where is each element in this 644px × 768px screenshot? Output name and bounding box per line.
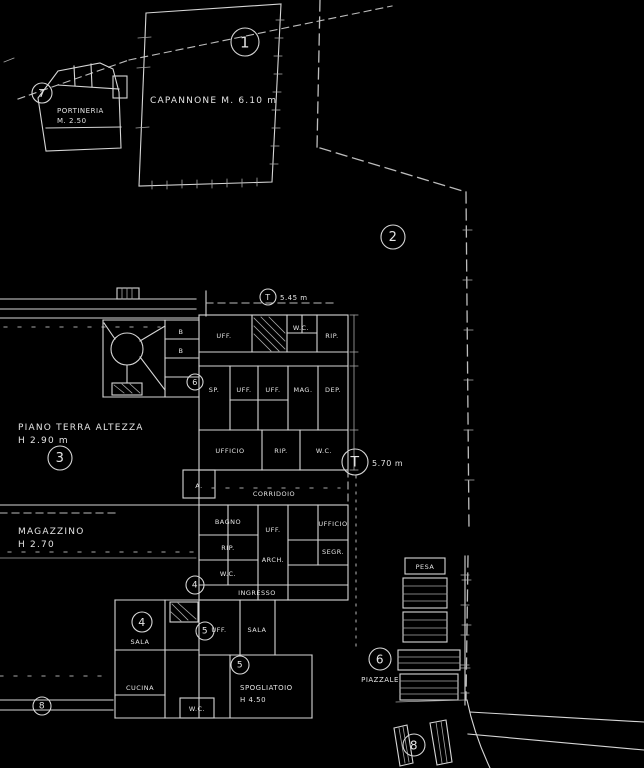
block-connector — [199, 470, 348, 505]
annex-label-line2: H 4.50 — [240, 696, 266, 704]
room-label: ARCH. — [262, 556, 285, 564]
room-label: CUCINA — [126, 684, 154, 692]
warehouse-building: CAPANNONE M. 6.10 m — [136, 4, 284, 189]
reference-marker: 6 — [187, 374, 203, 390]
room-label: INGRESSO — [238, 589, 276, 597]
room-label: RIP. — [221, 544, 234, 552]
svg-text:T: T — [349, 455, 359, 471]
room-label: UFFICIO — [318, 520, 347, 528]
room-label: A. — [195, 482, 202, 490]
reference-marker: 6 — [369, 648, 391, 670]
road-markings-left — [0, 288, 198, 327]
section-dotted-line: 5.70 m — [356, 459, 403, 648]
property-boundary — [317, 0, 474, 700]
left-site-lines: PIANO TERRA ALTEZZA H 2.90 m MAGAZZINO H… — [0, 423, 199, 710]
svg-text:4: 4 — [138, 616, 146, 629]
reference-marker: 5 — [231, 656, 249, 674]
room-label: W.C. — [220, 570, 236, 578]
ground-floor-note-line2: H 2.90 m — [18, 436, 69, 446]
room-label: MAG. — [293, 386, 312, 394]
reference-markers: 172T36T4455688 — [32, 28, 425, 756]
warehouse-note-line1: MAGAZZINO — [18, 527, 85, 537]
svg-text:5: 5 — [202, 627, 208, 637]
room-label: W.C. — [316, 447, 332, 455]
svg-text:7: 7 — [38, 87, 46, 100]
room-label: PESA — [416, 563, 435, 571]
svg-text:6: 6 — [192, 378, 198, 387]
gatehouse-label-line1: PORTINERIA — [57, 107, 104, 115]
blueprint-canvas: PORTINERIA M. 2.50 CAPANNONE M. 6.10 m — [0, 0, 644, 768]
loading-stalls: PIAZZALE — [361, 556, 469, 705]
ground-floor-note-line1: PIANO TERRA ALTEZZA — [18, 423, 144, 433]
room-label: CORRIDOIO — [253, 490, 295, 498]
gate-dimension-label: 5.45 m — [280, 294, 308, 302]
reference-marker: 3 — [48, 446, 72, 470]
room-label: SEGR. — [322, 548, 344, 556]
room-label: B — [179, 347, 184, 355]
room-label: UFF. — [265, 526, 280, 534]
svg-text:6: 6 — [376, 653, 384, 667]
svg-text:2: 2 — [389, 230, 398, 245]
room-label: W.C. — [293, 324, 309, 332]
warehouse-label: CAPANNONE M. 6.10 m — [150, 96, 277, 106]
room-label: UFF. — [236, 386, 251, 394]
reference-marker: 4 — [132, 612, 152, 632]
svg-text:T: T — [264, 293, 270, 302]
svg-text:4: 4 — [192, 581, 198, 591]
room-label: UFFICIO — [215, 447, 244, 455]
canopy-wing — [103, 320, 199, 397]
room-label: UFF. — [216, 332, 231, 340]
room-label: RIP. — [274, 447, 287, 455]
reference-marker: 2 — [381, 225, 405, 249]
office-block-upper — [183, 315, 358, 498]
room-label: SALA — [131, 638, 150, 646]
yard-label: PIAZZALE — [361, 676, 399, 684]
svg-text:8: 8 — [410, 739, 418, 753]
svg-text:5: 5 — [237, 661, 243, 671]
reference-marker: 1 — [231, 28, 259, 56]
annex-label-line1: SPOGLIATOIO — [240, 684, 293, 692]
svg-text:8: 8 — [39, 702, 45, 712]
gatehouse-label-line2: M. 2.50 — [57, 117, 87, 125]
room-label: BAGNO — [215, 518, 241, 526]
access-road — [396, 700, 644, 768]
room-label: W.C. — [189, 705, 205, 713]
section-dimension-label: 5.70 m — [372, 459, 403, 468]
room-label: DEP. — [325, 386, 341, 394]
svg-text:3: 3 — [56, 451, 65, 466]
gatehouse-building: PORTINERIA M. 2.50 — [38, 63, 127, 151]
turntable-circle — [111, 333, 143, 365]
room-label: RIP. — [325, 332, 338, 340]
room-label: B — [179, 328, 184, 336]
room-label: UFF. — [211, 626, 226, 634]
reference-marker: T — [342, 449, 368, 475]
warehouse-note-line2: H 2.70 — [18, 540, 55, 550]
room-label: UFF. — [265, 386, 280, 394]
site-plan-drawing: PORTINERIA M. 2.50 CAPANNONE M. 6.10 m — [0, 0, 644, 768]
svg-text:1: 1 — [240, 34, 250, 52]
room-label: SP. — [209, 386, 220, 394]
room-label: SALA — [248, 626, 267, 634]
gate-dashed-line: 5.45 m — [206, 291, 336, 316]
